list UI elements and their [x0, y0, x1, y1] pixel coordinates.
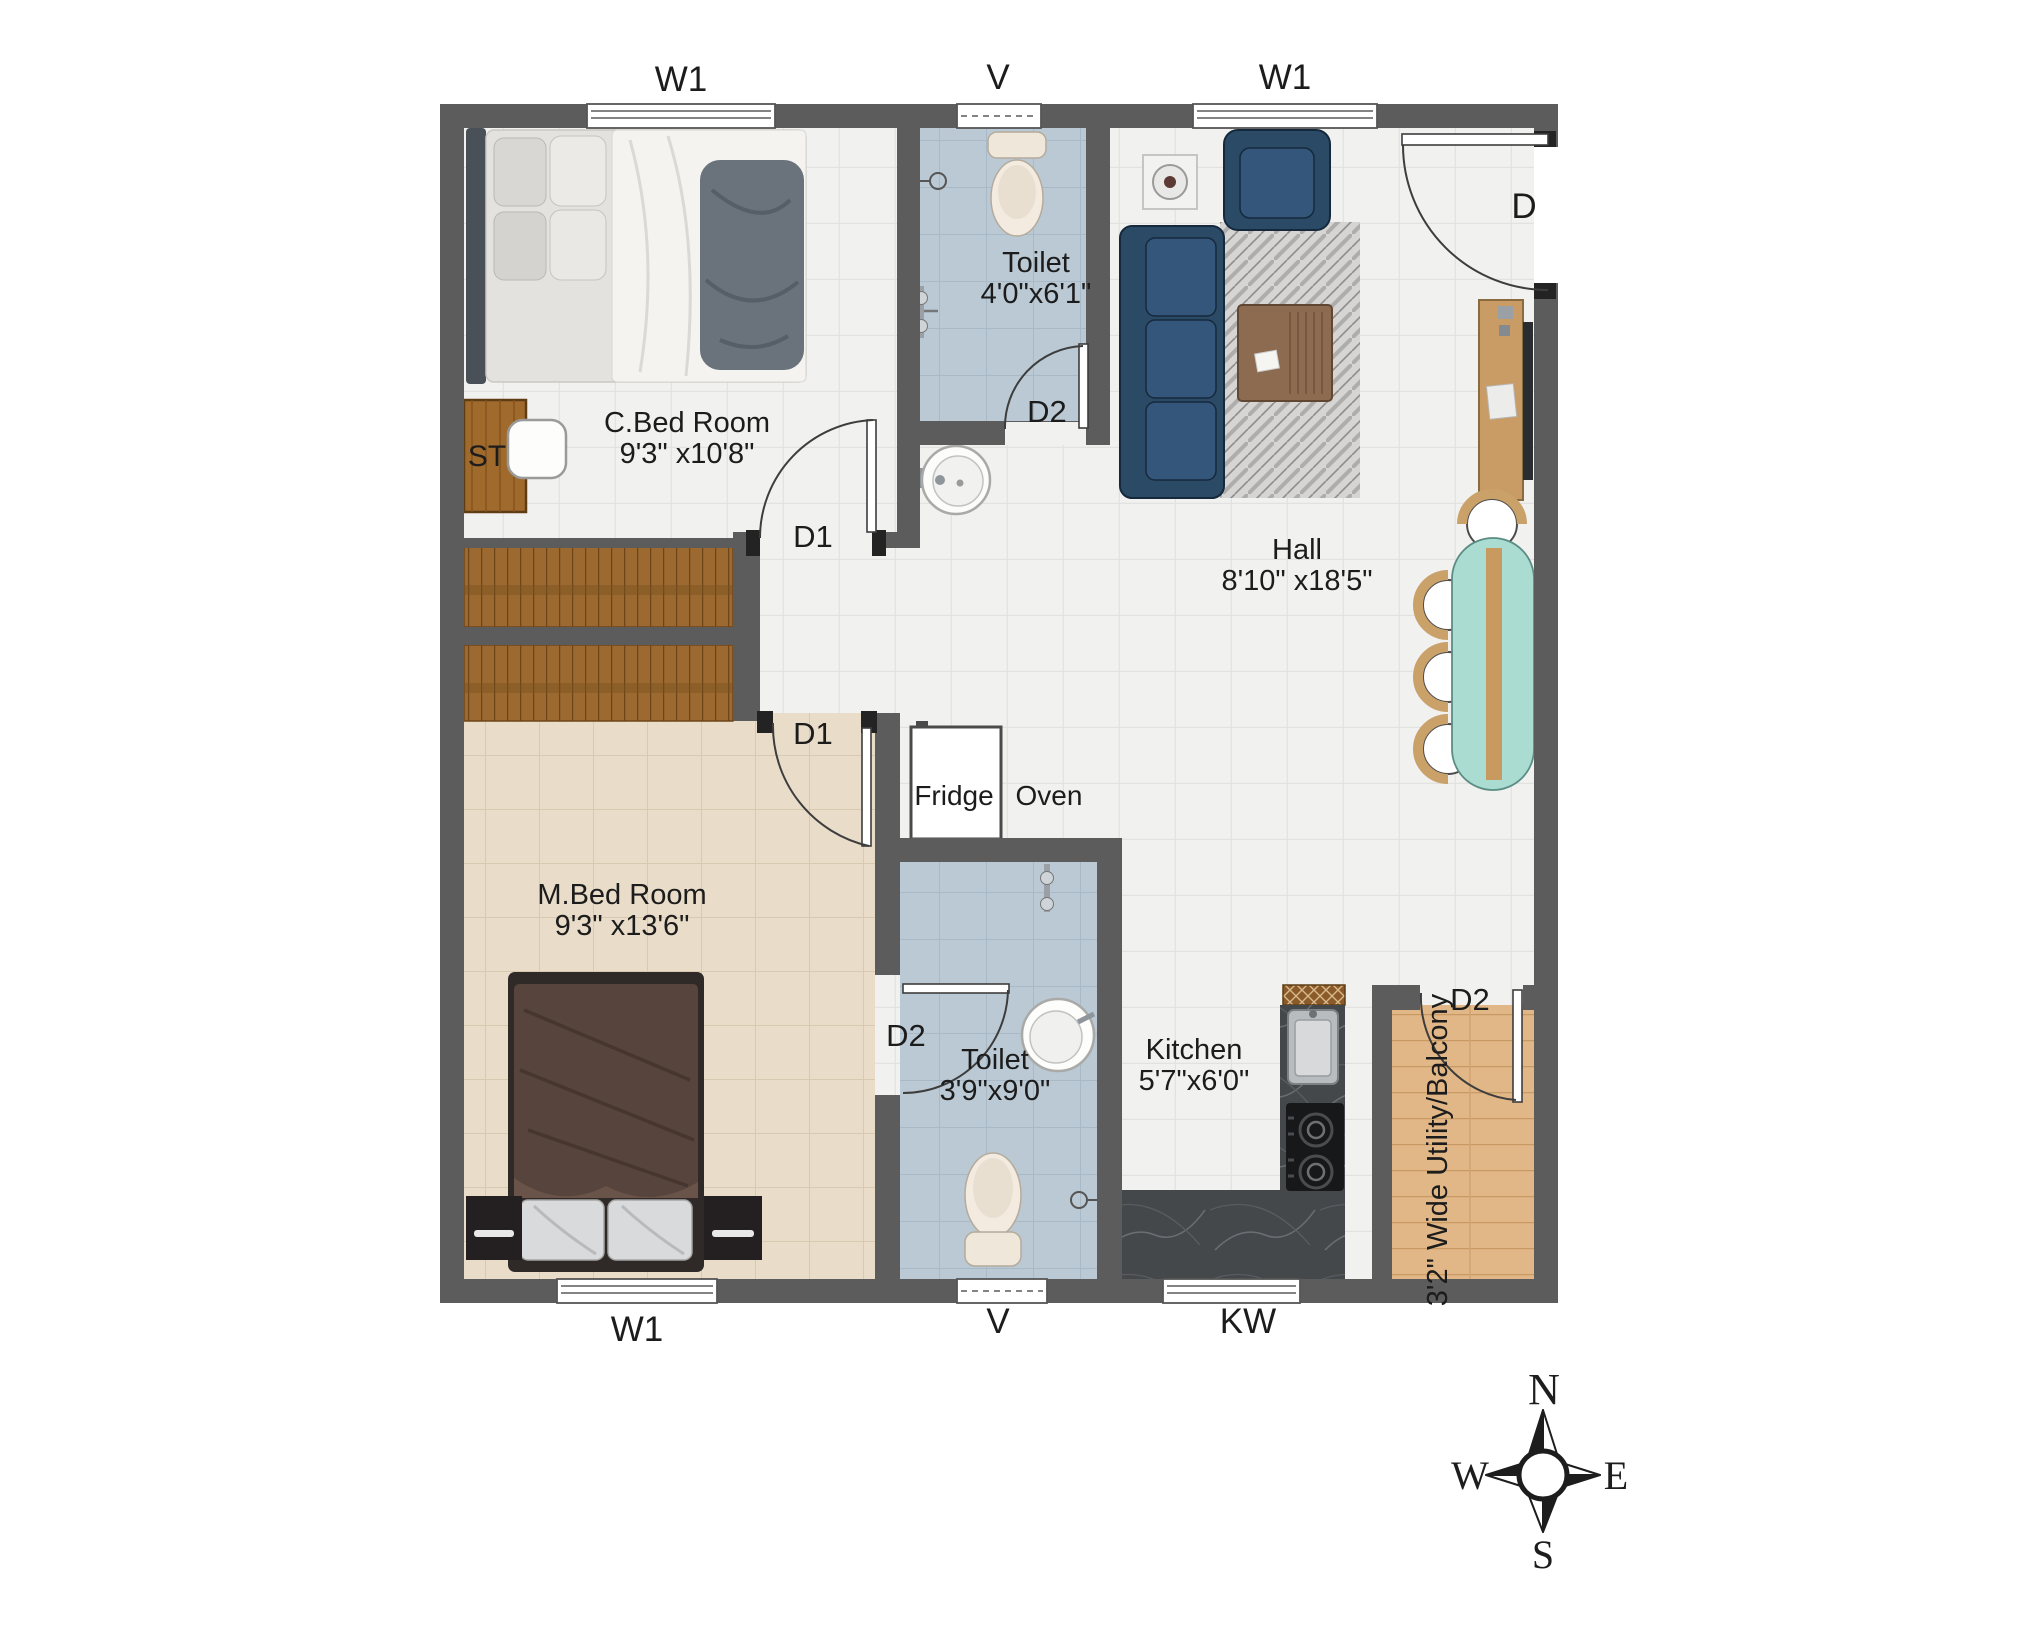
toilet-bottom-name: Toilet [961, 1044, 1029, 1076]
compass-circle [1519, 1451, 1567, 1499]
vent-v-bottom-label: V [986, 1302, 1010, 1341]
cbed-headboard [466, 128, 486, 384]
kitchen-counter-hatch [1283, 985, 1345, 1005]
wall-kitchen-west [1097, 838, 1122, 1280]
hall-name: Hall [1272, 534, 1322, 566]
door-toilet-bottom-label: D2 [886, 1018, 926, 1053]
wall-utility-north-right [1523, 985, 1558, 1010]
armchair [1224, 130, 1330, 230]
wall-west [440, 104, 464, 1303]
door-utility-label: D2 [1450, 982, 1490, 1017]
desk-chair [508, 420, 566, 478]
window-w1-top-label: W1 [655, 60, 708, 99]
hall-dims: 8'10" x18'5" [1222, 565, 1373, 597]
cbed-double-bed [466, 128, 806, 384]
wall-stair-top [464, 538, 733, 548]
wall-stair-divider [464, 627, 733, 645]
sofa-cushion [1146, 402, 1216, 480]
tv-unit [1479, 300, 1533, 500]
pillow [494, 138, 546, 206]
magazine [1255, 350, 1280, 372]
pillow [550, 136, 606, 206]
vent-v-top-label: V [986, 58, 1010, 97]
nightstand [466, 1196, 522, 1260]
basin-faucet [935, 475, 945, 485]
cbed-room-name: C.Bed Room [604, 407, 770, 439]
floor-plan-page: C.Bed Room 9'3" x10'8" Toilet 4'0"x6'1" … [0, 0, 2029, 1627]
vent-v-bottom [957, 1279, 1047, 1303]
study-table-label: ST [468, 440, 506, 473]
wash-basin [920, 446, 990, 514]
mbed-room-name: M.Bed Room [537, 879, 706, 911]
door-toilet-top-label: D2 [1027, 394, 1067, 429]
pillow [550, 210, 606, 280]
compass-rose: N S W E [1451, 1365, 1628, 1577]
window-w1-bottom [557, 1279, 717, 1303]
wall-stair-end [733, 532, 760, 721]
fridge-handle [916, 721, 928, 727]
toilet-top-name: Toilet [1002, 247, 1070, 279]
door-main-label: D [1511, 187, 1536, 226]
door-mbed-label: D1 [793, 716, 833, 751]
tv-screen [1523, 322, 1533, 480]
door-cbed-label: D1 [793, 519, 833, 554]
sofa [1120, 226, 1224, 498]
kitchen-name: Kitchen [1146, 1034, 1243, 1066]
compass-west: W [1451, 1453, 1489, 1498]
wall-utility-north-left [1372, 985, 1420, 1010]
wc-tank [965, 1232, 1021, 1266]
wall-mbed-east-lower [875, 1095, 900, 1280]
toilet-top-dims: 4'0"x6'1" [981, 278, 1092, 310]
kitchen-dims: 5'7"x6'0" [1139, 1065, 1250, 1097]
sofa-cushion [1146, 238, 1216, 316]
window-w1-top [587, 104, 775, 128]
wall-toilet-bottom-north [875, 838, 1122, 862]
window-kw-label: KW [1220, 1302, 1276, 1341]
window-w1-top-right [1193, 104, 1377, 128]
pillow [494, 212, 546, 280]
kitchen-counter-bottom [1122, 1190, 1345, 1280]
compass-north: N [1528, 1365, 1560, 1414]
coffee-table [1238, 305, 1332, 401]
wall-utility-west [1372, 1010, 1392, 1283]
utility-name: 3'2" Wide Utility/Balcony [1422, 993, 1454, 1306]
wall-east-lower [1534, 283, 1558, 1303]
wc-tank [988, 132, 1046, 158]
sofa-cushion [1146, 320, 1216, 398]
window-w1-top-right-label: W1 [1259, 58, 1312, 97]
compass-east: E [1604, 1453, 1628, 1498]
nightstand [704, 1196, 762, 1260]
door-landing-floor [760, 548, 875, 713]
oven-label: Oven [1016, 780, 1083, 811]
wall-cbed-east [897, 128, 920, 548]
mbed-room-dims: 9'3" x13'6" [555, 910, 690, 942]
toilet-bottom-dims: 3'9"x9'0" [940, 1075, 1051, 1107]
cbed-room-dims: 9'3" x10'8" [620, 438, 755, 470]
compass-south: S [1532, 1532, 1554, 1577]
fridge-label: Fridge [914, 780, 993, 811]
window-w1-bottom-label: W1 [611, 1310, 664, 1349]
vent-v-top [957, 104, 1041, 128]
floor-plan: C.Bed Room 9'3" x10'8" Toilet 4'0"x6'1" … [0, 0, 2029, 1627]
printer [1486, 384, 1516, 420]
window-kw [1163, 1279, 1300, 1303]
